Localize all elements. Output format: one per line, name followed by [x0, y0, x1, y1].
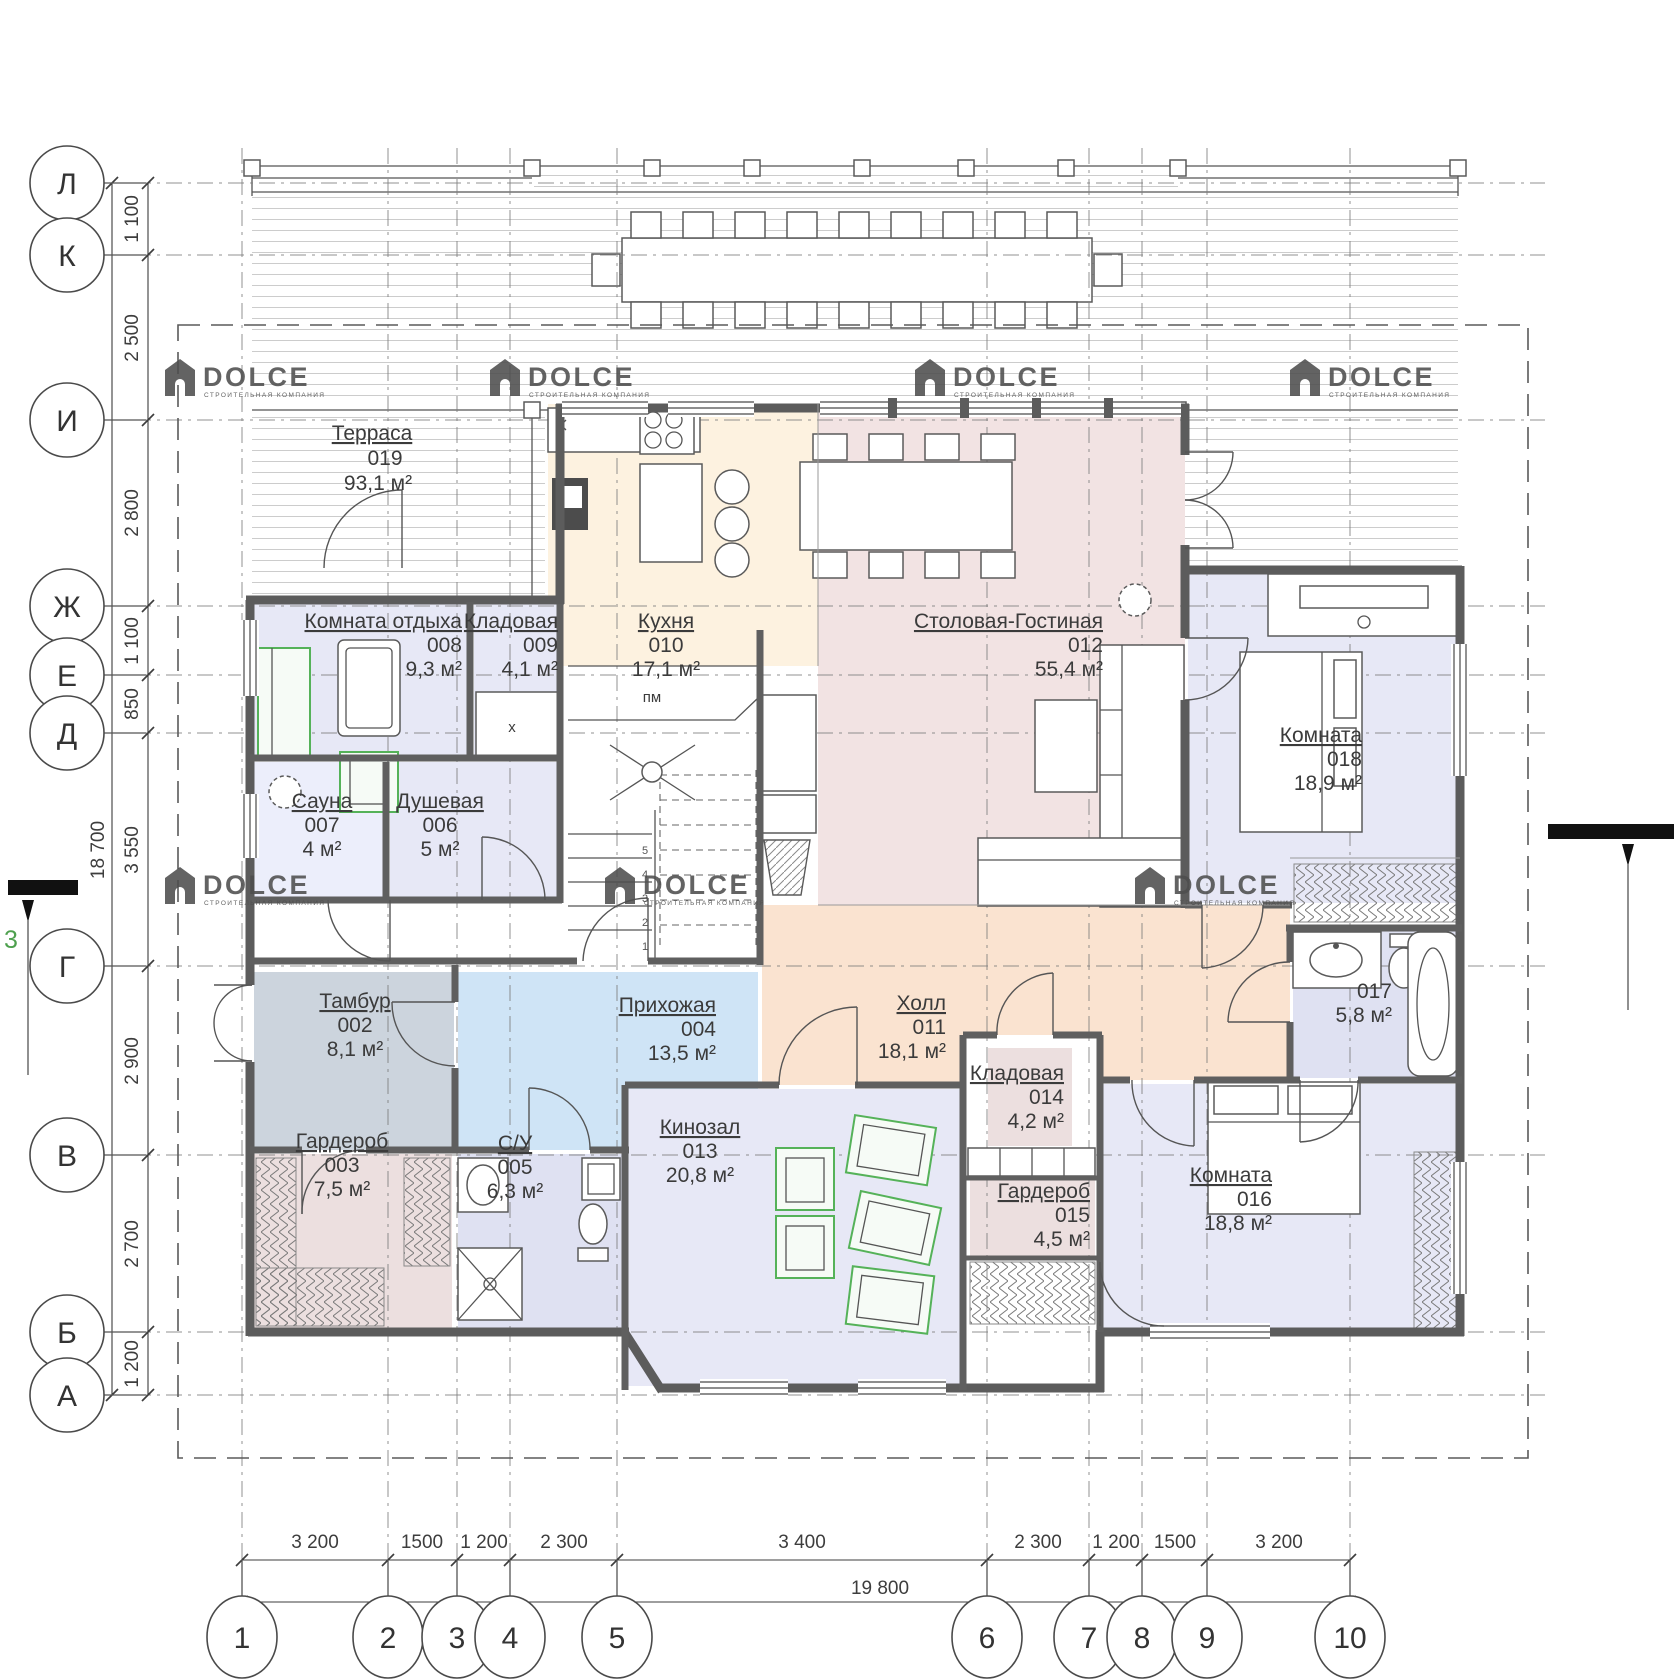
- dim-bottom-1: 1500: [401, 1532, 443, 1553]
- stair-step-2: 2: [642, 917, 648, 929]
- svg-text:007: 007: [304, 814, 339, 837]
- svg-text:Душевая: Душевая: [396, 790, 484, 813]
- svg-text:5 м²: 5 м²: [421, 838, 460, 861]
- window-013-1: [700, 1379, 788, 1397]
- svg-text:Л: Л: [57, 168, 77, 201]
- svg-text:10: 10: [1333, 1622, 1366, 1655]
- svg-text:18,1 м²: 18,1 м²: [878, 1040, 946, 1063]
- axis-col-0: 1: [207, 1560, 277, 1678]
- svg-text:008: 008: [427, 634, 462, 657]
- svg-text:DOLCE: DOLCE: [203, 362, 310, 392]
- fireplace-hatch: [764, 840, 810, 895]
- svg-text:7,5 м²: 7,5 м²: [314, 1178, 370, 1201]
- axis-col-4: 5: [582, 1560, 652, 1678]
- dim-left-5: 3 550: [122, 826, 143, 874]
- svg-text:Терраса: Терраса: [332, 422, 413, 445]
- axis-col-9: 10: [1315, 1560, 1385, 1678]
- glazing-dining: [820, 398, 1181, 418]
- svg-text:015: 015: [1055, 1204, 1090, 1227]
- fireplace-upper: [758, 695, 816, 791]
- dim-left-6: 2 900: [122, 1037, 143, 1085]
- floor-plan-page: x: [0, 0, 1680, 1680]
- svg-text:С/У: С/У: [498, 1132, 533, 1155]
- watermark-1: DOLCE СТРОИТЕЛЬНАЯ КОМПАНИЯ: [165, 359, 325, 399]
- svg-text:7: 7: [1081, 1622, 1098, 1655]
- window-013-2: [858, 1379, 946, 1397]
- svg-text:002: 002: [337, 1014, 372, 1037]
- dim-left-0: 1 100: [122, 195, 143, 243]
- dim-bottom-2: 1 200: [460, 1532, 508, 1553]
- svg-text:DOLCE: DOLCE: [1328, 362, 1435, 392]
- stairs: пм 1 2 3 4 5: [568, 666, 758, 960]
- svg-text:СТРОИТЕЛЬНАЯ КОМПАНИЯ: СТРОИТЕЛЬНАЯ КОМПАНИЯ: [204, 900, 325, 907]
- svg-text:13,5 м²: 13,5 м²: [648, 1042, 716, 1065]
- svg-text:4,2 м²: 4,2 м²: [1008, 1110, 1064, 1133]
- svg-text:006: 006: [422, 814, 457, 837]
- svg-text:DOLCE: DOLCE: [1173, 870, 1280, 900]
- svg-text:016: 016: [1237, 1188, 1272, 1211]
- dim-left-2: 2 800: [122, 489, 143, 537]
- svg-text:009: 009: [523, 634, 558, 657]
- svg-text:4: 4: [502, 1622, 519, 1655]
- svg-text:СТРОИТЕЛЬНАЯ КОМПАНИЯ: СТРОИТЕЛЬНАЯ КОМПАНИЯ: [529, 392, 650, 399]
- svg-text:Ж: Ж: [53, 591, 81, 624]
- svg-text:Кухня: Кухня: [638, 610, 694, 633]
- svg-text:005: 005: [497, 1156, 532, 1179]
- door-007: [328, 900, 390, 961]
- svg-text:DOLCE: DOLCE: [643, 870, 750, 900]
- svg-text:Кладовая: Кладовая: [970, 1062, 1064, 1085]
- svg-text:Комната: Комната: [1190, 1164, 1273, 1187]
- deck-terrace-right: [1180, 410, 1458, 568]
- svg-text:8: 8: [1134, 1622, 1151, 1655]
- svg-text:Холл: Холл: [897, 992, 947, 1015]
- cabinet-x-mark: x: [508, 719, 516, 736]
- svg-text:DOLCE: DOLCE: [528, 362, 635, 392]
- stair-step-5: 5: [642, 845, 648, 857]
- dim-bottom-3: 2 300: [540, 1532, 588, 1553]
- svg-text:4,5 м²: 4,5 м²: [1034, 1228, 1090, 1251]
- dim-left-4: 850: [122, 688, 143, 720]
- svg-text:Гардероб: Гардероб: [296, 1130, 388, 1153]
- svg-text:6,3 м²: 6,3 м²: [487, 1180, 543, 1203]
- svg-text:Г: Г: [59, 951, 75, 984]
- svg-text:4 м²: 4 м²: [303, 838, 342, 861]
- svg-text:Кинозал: Кинозал: [660, 1116, 741, 1139]
- dolce-logo-icon: [605, 867, 635, 904]
- svg-text:93,1 м²: 93,1 м²: [344, 472, 412, 495]
- axis-row-7: В: [30, 1118, 146, 1192]
- svg-text:5,8 м²: 5,8 м²: [1336, 1004, 1392, 1027]
- dim-bottom-0: 3 200: [291, 1532, 339, 1553]
- floor-plan: x: [0, 0, 1680, 1680]
- svg-text:Столовая-Гостиная: Столовая-Гостиная: [914, 610, 1103, 633]
- window-008: [241, 620, 259, 696]
- side-table: [1119, 584, 1151, 616]
- room-fill-006-shower: [390, 762, 558, 898]
- window-016-south: [1150, 1323, 1270, 1341]
- svg-text:014: 014: [1029, 1086, 1064, 1109]
- svg-text:2: 2: [380, 1622, 397, 1655]
- svg-text:003: 003: [324, 1154, 359, 1177]
- svg-text:DOLCE: DOLCE: [203, 870, 310, 900]
- axis-row-6: Г: [30, 929, 146, 1003]
- svg-text:8,1 м²: 8,1 м²: [327, 1038, 383, 1061]
- dim-left-7: 2 700: [122, 1220, 143, 1268]
- dim-bottom-8: 3 200: [1255, 1532, 1303, 1553]
- svg-text:И: И: [56, 405, 78, 438]
- svg-text:4,1 м²: 4,1 м²: [502, 658, 558, 681]
- axis-col-7: 8: [1107, 1560, 1177, 1678]
- room-009-cabinet: x: [476, 692, 560, 756]
- svg-text:СТРОИТЕЛЬНАЯ КОМПАНИЯ: СТРОИТЕЛЬНАЯ КОМПАНИЯ: [954, 392, 1075, 399]
- svg-text:017: 017: [1357, 980, 1392, 1003]
- svg-text:17,1 м²: 17,1 м²: [632, 658, 700, 681]
- dim-bottom-7: 1500: [1154, 1532, 1196, 1553]
- svg-text:Тамбур: Тамбур: [319, 990, 390, 1013]
- dim-left-1: 2 500: [122, 314, 143, 362]
- svg-text:9: 9: [1199, 1622, 1216, 1655]
- window-016: [1451, 1162, 1469, 1294]
- stair-step-1: 1: [642, 941, 648, 953]
- dim-left-total: 18 700: [88, 821, 109, 879]
- svg-text:18,8 м²: 18,8 м²: [1204, 1212, 1272, 1235]
- svg-text:019: 019: [367, 447, 402, 470]
- section-label: 3: [4, 926, 18, 954]
- svg-text:9,3 м²: 9,3 м²: [406, 658, 462, 681]
- bed-016: [1208, 1082, 1360, 1214]
- watermark-5: DOLCE СТРОИТЕЛЬНАЯ КОМПАНИЯ: [165, 867, 325, 907]
- dim-bottom-5: 2 300: [1014, 1532, 1062, 1553]
- svg-text:СТРОИТЕЛЬНАЯ КОМПАНИЯ: СТРОИТЕЛЬНАЯ КОМПАНИЯ: [644, 900, 765, 907]
- axis-col-8: 9: [1172, 1560, 1242, 1678]
- svg-text:018: 018: [1327, 748, 1362, 771]
- entry-double-door: [214, 985, 252, 1061]
- dim-left-3: 1 100: [122, 617, 143, 665]
- svg-text:Е: Е: [57, 660, 77, 693]
- svg-text:010: 010: [648, 634, 683, 657]
- svg-text:Сауна: Сауна: [292, 790, 353, 813]
- stair-landing-label: пм: [643, 689, 661, 706]
- axis-col-5: 6: [952, 1560, 1022, 1678]
- dim-bottom-4: 3 400: [778, 1532, 826, 1553]
- svg-text:СТРОИТЕЛЬНАЯ КОМПАНИЯ: СТРОИТЕЛЬНАЯ КОМПАНИЯ: [1329, 392, 1450, 399]
- svg-text:55,4 м²: 55,4 м²: [1035, 658, 1103, 681]
- watermark-6: DOLCE СТРОИТЕЛЬНАЯ КОМПАНИЯ: [605, 867, 765, 907]
- dolce-logo-icon: [165, 867, 195, 904]
- svg-text:СТРОИТЕЛЬНАЯ КОМПАНИЯ: СТРОИТЕЛЬНАЯ КОМПАНИЯ: [204, 392, 325, 399]
- svg-text:004: 004: [681, 1018, 716, 1041]
- axis-col-3: 4: [475, 1560, 545, 1678]
- svg-text:20,8 м²: 20,8 м²: [666, 1164, 734, 1187]
- tv-console-018: [1268, 574, 1458, 636]
- window-kitchen-2: [668, 399, 754, 417]
- svg-text:DOLCE: DOLCE: [953, 362, 1060, 392]
- svg-text:18,9 м²: 18,9 м²: [1294, 772, 1362, 795]
- section-marker-right: [1548, 824, 1674, 1010]
- svg-text:Комната отдыха: Комната отдыха: [305, 610, 463, 633]
- svg-text:Гардероб: Гардероб: [998, 1180, 1090, 1203]
- svg-text:Кладовая: Кладовая: [464, 610, 558, 633]
- svg-text:СТРОИТЕЛЬНАЯ КОМПАНИЯ: СТРОИТЕЛЬНАЯ КОМПАНИЯ: [1174, 900, 1295, 907]
- dim-bottom-6: 1 200: [1092, 1532, 1140, 1553]
- window-007: [241, 794, 259, 858]
- storeroom-014-shelf: [968, 1148, 1095, 1176]
- svg-text:3: 3: [449, 1622, 466, 1655]
- svg-text:А: А: [57, 1380, 77, 1413]
- axis-col-1: 2: [353, 1560, 423, 1678]
- svg-text:5: 5: [609, 1622, 626, 1655]
- svg-text:Комната: Комната: [1280, 724, 1363, 747]
- dim-left-8: 1 200: [122, 1340, 143, 1388]
- svg-text:6: 6: [979, 1622, 996, 1655]
- svg-text:Б: Б: [57, 1317, 77, 1350]
- axis-row-2: И: [30, 383, 146, 457]
- svg-text:012: 012: [1068, 634, 1103, 657]
- window-kitchen-1: [562, 399, 648, 417]
- dim-bottom-total: 19 800: [851, 1578, 909, 1599]
- svg-text:Д: Д: [57, 718, 77, 751]
- svg-text:Прихожая: Прихожая: [619, 994, 716, 1017]
- svg-text:К: К: [58, 240, 76, 273]
- window-018: [1451, 644, 1469, 776]
- svg-text:В: В: [57, 1140, 77, 1173]
- dolce-logo-icon: [165, 359, 195, 396]
- svg-text:013: 013: [682, 1140, 717, 1163]
- svg-text:011: 011: [913, 1016, 946, 1039]
- svg-text:1: 1: [234, 1622, 251, 1655]
